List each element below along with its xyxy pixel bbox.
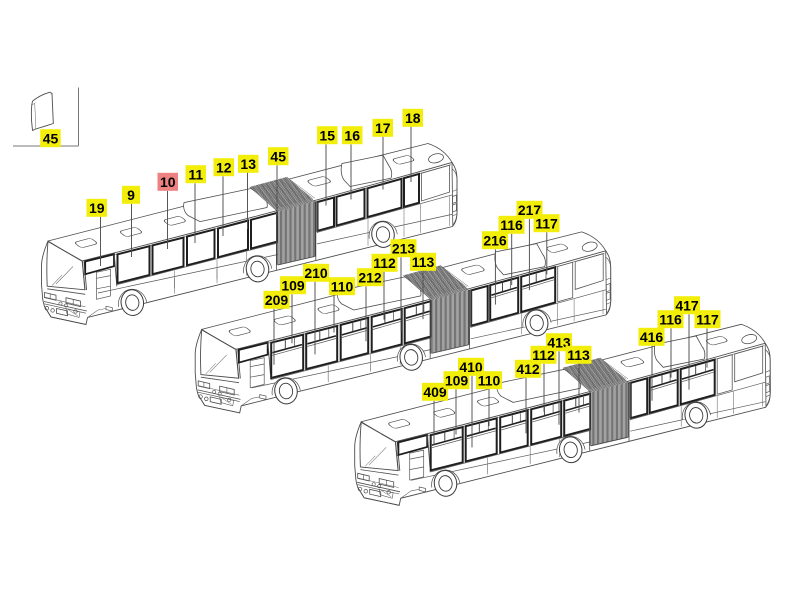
svg-text:9: 9 <box>127 187 135 203</box>
svg-text:18: 18 <box>405 110 421 126</box>
svg-text:109: 109 <box>281 277 305 293</box>
svg-text:216: 216 <box>483 232 507 248</box>
svg-text:110: 110 <box>331 278 354 294</box>
svg-text:45: 45 <box>43 130 59 146</box>
svg-text:117: 117 <box>696 311 719 327</box>
svg-text:209: 209 <box>265 292 289 308</box>
svg-text:10: 10 <box>160 174 176 190</box>
svg-text:13: 13 <box>240 156 256 172</box>
svg-text:117: 117 <box>535 215 558 231</box>
svg-text:416: 416 <box>640 329 664 345</box>
svg-text:409: 409 <box>423 384 447 400</box>
svg-text:12: 12 <box>216 159 232 175</box>
svg-text:15: 15 <box>319 127 335 143</box>
svg-text:113: 113 <box>567 347 590 363</box>
svg-text:19: 19 <box>89 200 105 216</box>
svg-text:16: 16 <box>344 127 360 143</box>
svg-text:110: 110 <box>478 372 501 388</box>
svg-text:112: 112 <box>373 255 396 271</box>
svg-text:210: 210 <box>304 265 328 281</box>
svg-text:45: 45 <box>270 148 286 164</box>
svg-text:11: 11 <box>188 166 203 182</box>
svg-text:17: 17 <box>375 120 391 136</box>
svg-text:113: 113 <box>412 254 435 270</box>
svg-text:116: 116 <box>500 217 523 233</box>
